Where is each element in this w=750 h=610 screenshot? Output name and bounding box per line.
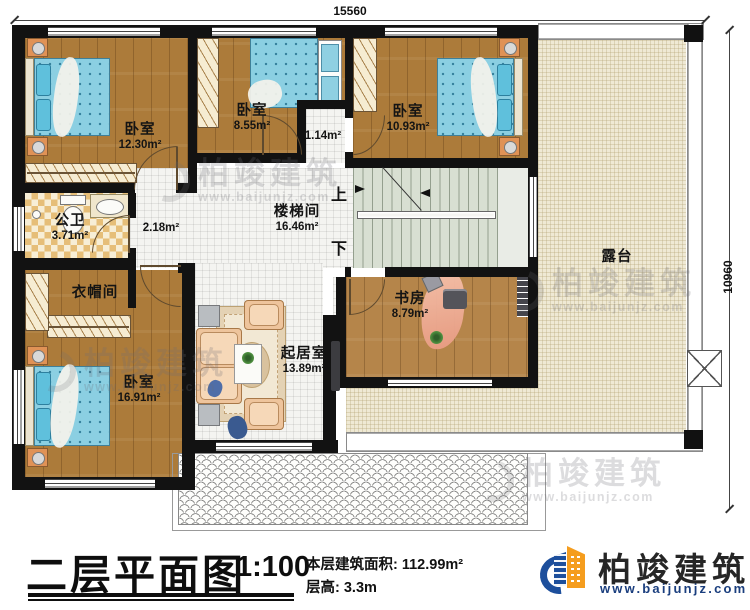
terrace-railing-bottom — [346, 432, 703, 452]
wall — [297, 100, 345, 109]
terrace-floor — [538, 40, 686, 432]
door-leaf — [140, 265, 181, 267]
bed-pillow — [36, 99, 51, 131]
logo-building-blue-icon — [554, 552, 566, 586]
stair-down-label: 下 — [331, 235, 347, 259]
window — [212, 27, 316, 36]
logo-window-stripes-icon — [577, 556, 580, 582]
stair-handrail — [357, 211, 496, 219]
dimension-right-value: 10960 — [721, 249, 735, 305]
wardrobe-bedroom-tr — [353, 38, 377, 112]
plan-title: 二层平面图 — [26, 541, 246, 601]
window — [385, 27, 497, 36]
company-url: www.baijunjz.com — [600, 581, 747, 596]
potted-plant — [430, 331, 443, 344]
wall — [12, 258, 130, 270]
logo-window-stripes-icon — [571, 556, 574, 582]
bed-headboard — [514, 58, 523, 136]
wardrobe-rod — [49, 326, 129, 328]
nightstand — [27, 137, 48, 156]
wall — [345, 108, 353, 118]
sofa-cushion — [200, 332, 238, 365]
bed-pillow — [36, 64, 51, 96]
window — [529, 177, 537, 257]
floor-area-text: 本层建筑面积: 112.99m² — [306, 553, 463, 574]
wall — [188, 25, 197, 193]
window — [48, 27, 160, 36]
bed-pillow — [497, 64, 512, 96]
armchair-cushion — [249, 304, 279, 326]
dimension-tick — [725, 504, 734, 513]
title-underline — [28, 593, 294, 597]
dimension-top-value: 15560 — [320, 4, 380, 18]
wall — [345, 158, 538, 168]
nightstand — [27, 346, 48, 365]
room-label-bedroom-tm: 卧室 8.55m² — [207, 103, 297, 134]
window — [388, 379, 492, 386]
nightstand — [27, 38, 48, 57]
room-label-bathroom: 公卫 3.71m² — [25, 213, 115, 244]
nightstand — [499, 38, 520, 57]
bed-pillow — [36, 408, 51, 441]
window — [13, 207, 24, 251]
wall — [385, 267, 538, 277]
bed-headboard — [25, 366, 34, 446]
stair-landing — [498, 168, 528, 268]
room-label-bedroom-bl: 卧室 16.91m² — [94, 375, 184, 406]
room-label-hallway: 2.18m² — [131, 222, 191, 236]
door-leaf — [176, 147, 178, 190]
column-marker — [687, 350, 722, 387]
stair-arrow — [420, 189, 430, 197]
room-label-study: 书房 8.79m² — [365, 291, 455, 322]
nightstand — [27, 448, 48, 467]
window — [216, 442, 312, 451]
terrace-railing-top — [538, 23, 704, 40]
window — [45, 479, 155, 488]
wall — [345, 267, 351, 277]
room-label-cloakroom: 衣帽间 — [50, 285, 140, 302]
dimension-line-top — [14, 20, 706, 21]
floor-plan-drawing: 上 下 卧室 12.30m² 卧室 8.55m² 卧室 10.93m² 1.14… — [0, 0, 750, 535]
room-label-terrace: 露台 — [577, 249, 657, 266]
stair-up-label: 上 — [331, 181, 347, 205]
armchair-cushion — [249, 402, 279, 426]
bed-pillow — [497, 99, 512, 131]
window — [13, 370, 24, 444]
logo-building-orange-icon — [567, 546, 585, 588]
terrace-floor-south — [346, 388, 538, 432]
floor-height-text: 层高: 3.3m — [306, 576, 377, 597]
table-flowers — [242, 352, 254, 364]
room-label-stairwell: 楼梯间 16.46m² — [252, 204, 342, 235]
roof-tiles — [178, 453, 528, 525]
plan-scale: 1:100 — [236, 551, 310, 584]
terrace-corner-post-se — [684, 430, 703, 449]
door-leaf — [349, 279, 351, 315]
wardrobe-cloakroom-v — [25, 273, 49, 331]
wardrobe-rod — [27, 172, 135, 174]
cabinet-shelf — [321, 44, 339, 72]
title-underline-thin — [28, 599, 294, 601]
terrace-corner-post-ne — [684, 25, 703, 42]
side-table — [198, 404, 220, 426]
room-label-vestibule: 1.14m² — [292, 130, 354, 144]
room-label-bedroom-tr: 卧室 10.93m² — [363, 104, 453, 135]
stair-arrow — [355, 185, 365, 193]
wall — [345, 38, 353, 110]
wall — [25, 183, 135, 193]
company-logo-icon — [540, 542, 592, 600]
room-label-bedroom-tl: 卧室 12.30m² — [95, 122, 185, 153]
bed-pillow — [36, 372, 51, 405]
door-leaf — [128, 216, 130, 253]
bed-headboard — [25, 58, 34, 136]
room-label-living: 起居室 13.89m² — [258, 346, 350, 377]
terrace-railing-right — [687, 23, 703, 452]
dimension-tick — [701, 15, 710, 24]
wall — [176, 183, 197, 193]
nightstand — [499, 137, 520, 156]
side-table — [198, 305, 220, 327]
floor-plan-page: 上 下 卧室 12.30m² 卧室 8.55m² 卧室 10.93m² 1.14… — [0, 0, 750, 610]
toilet-tank — [60, 195, 86, 205]
title-block: 二层平面图 1:100 本层建筑面积: 112.99m² 层高: 3.3m 柏竣… — [0, 535, 750, 610]
